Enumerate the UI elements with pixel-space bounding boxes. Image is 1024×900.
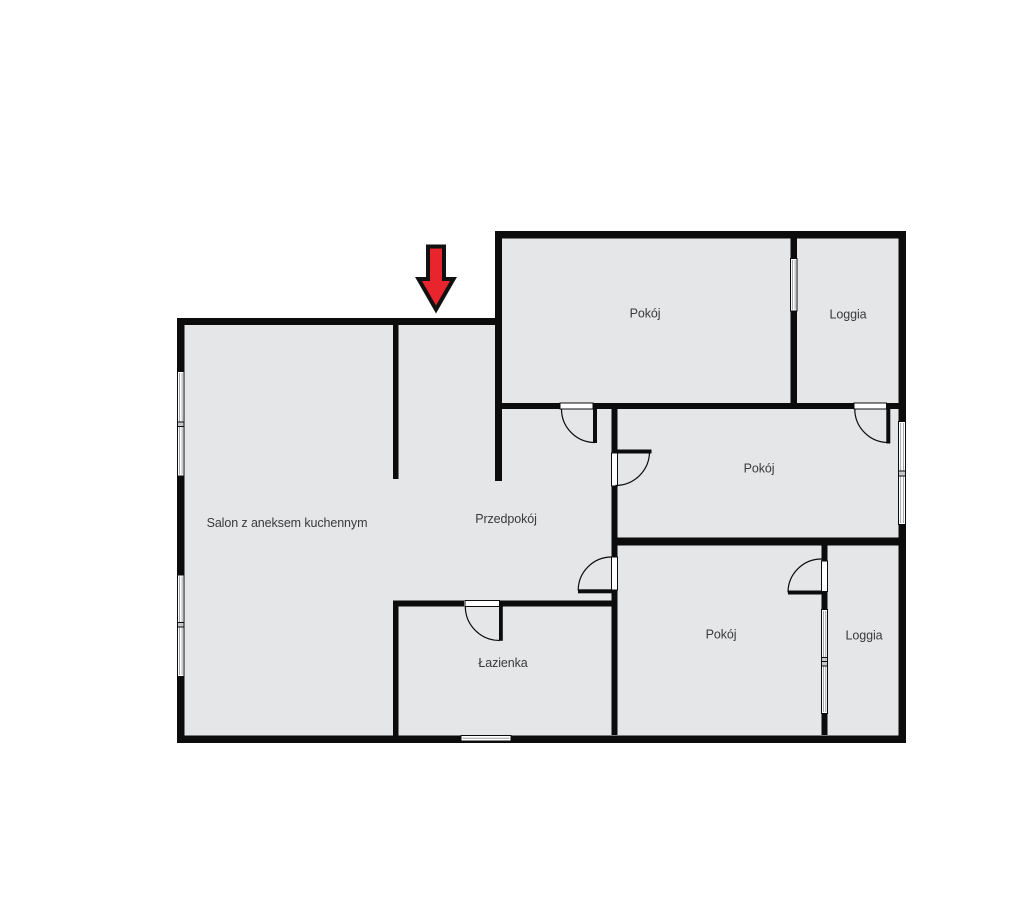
svg-text:Salon z aneksem kuchennym: Salon z aneksem kuchennym <box>207 516 368 530</box>
svg-text:Pokój: Pokój <box>630 307 661 321</box>
svg-text:Loggia: Loggia <box>846 629 883 643</box>
svg-text:Loggia: Loggia <box>830 308 867 322</box>
svg-text:Pokój: Pokój <box>744 462 775 476</box>
svg-text:Pokój: Pokój <box>706 628 737 642</box>
svg-text:Łazienka: Łazienka <box>478 656 527 670</box>
svg-text:Przedpokój: Przedpokój <box>475 512 537 526</box>
